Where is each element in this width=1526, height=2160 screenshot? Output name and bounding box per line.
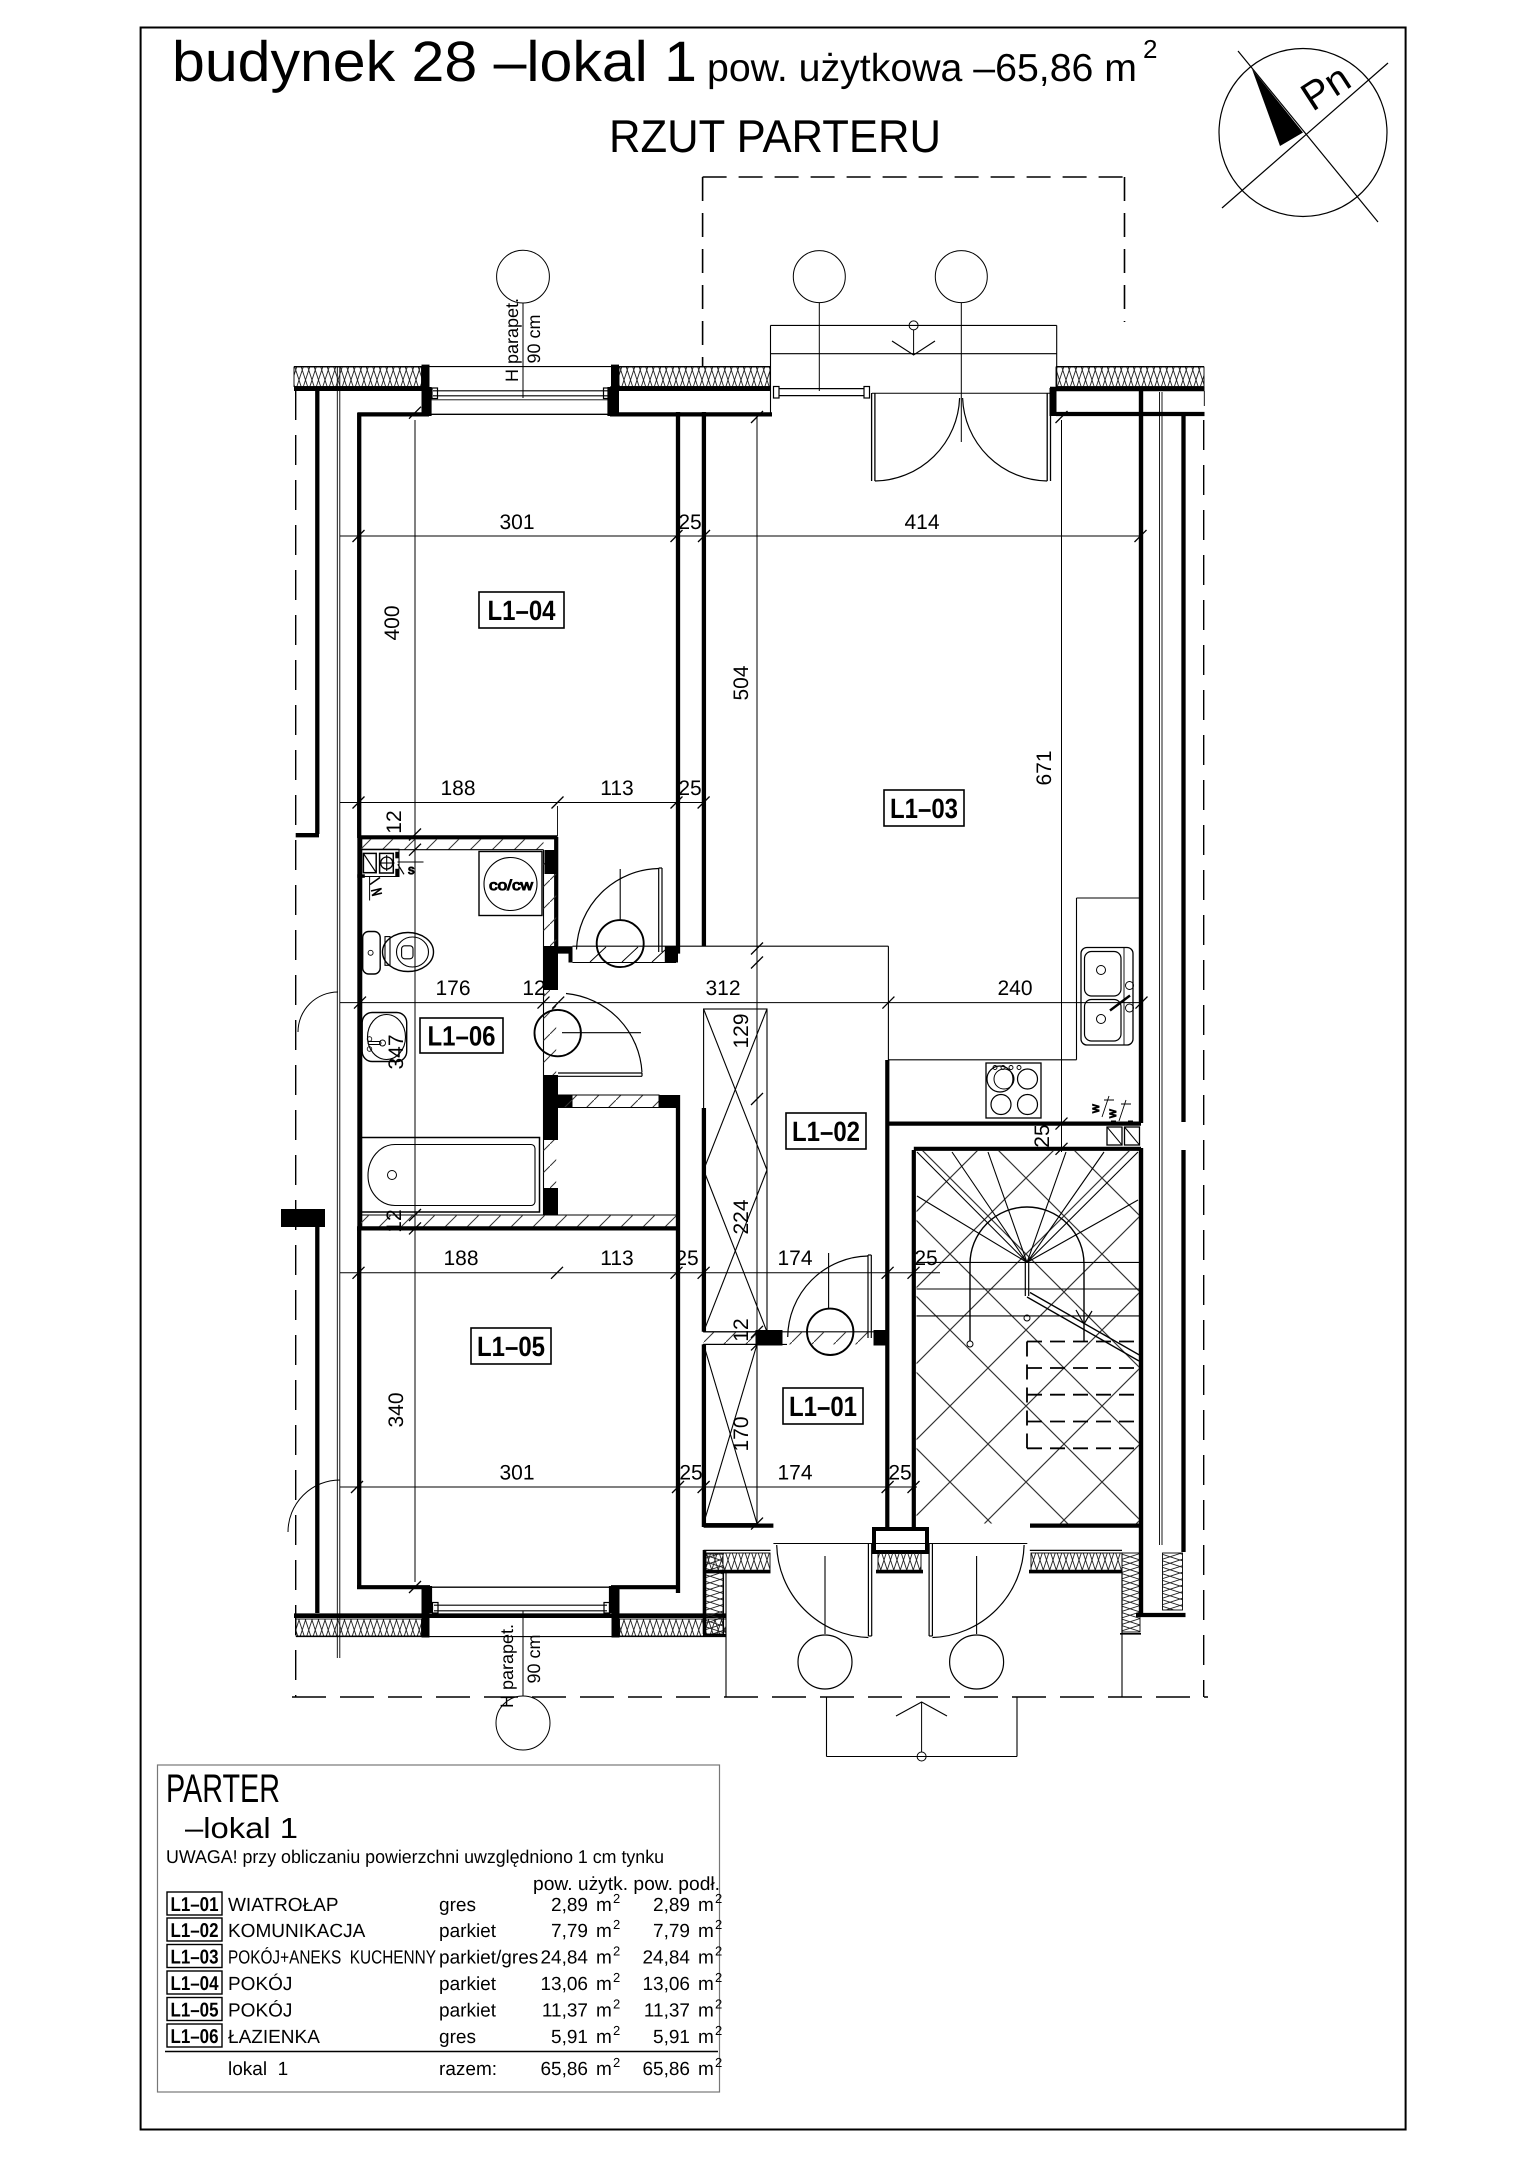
svg-text:L1–05: L1–05 bbox=[171, 2000, 219, 2022]
svg-text:113: 113 bbox=[600, 777, 633, 800]
svg-text:m: m bbox=[698, 1974, 714, 1995]
svg-text:2: 2 bbox=[715, 2023, 722, 2038]
svg-text:L1–04: L1–04 bbox=[171, 1973, 220, 1995]
svg-text:m: m bbox=[698, 1921, 714, 1942]
svg-text:2: 2 bbox=[613, 1917, 620, 1932]
svg-text:w: w bbox=[1088, 1104, 1102, 1114]
svg-text:7,79: 7,79 bbox=[653, 1921, 690, 1942]
svg-text:parkiet: parkiet bbox=[439, 1974, 497, 1995]
svg-text:25: 25 bbox=[1031, 1124, 1054, 1147]
svg-text:24,84: 24,84 bbox=[642, 1948, 690, 1969]
svg-text:11,37: 11,37 bbox=[542, 2001, 588, 2022]
svg-text:13,06: 13,06 bbox=[540, 1974, 588, 1995]
svg-text:–lokal 1: –lokal 1 bbox=[185, 1813, 298, 1845]
svg-text:H parapet.: H parapet. bbox=[502, 298, 522, 382]
svg-text:188: 188 bbox=[440, 777, 475, 800]
svg-text:lokal 1: lokal 1 bbox=[228, 2059, 288, 2080]
svg-text:2: 2 bbox=[1143, 34, 1157, 64]
svg-text:m: m bbox=[596, 1895, 612, 1916]
svg-text:12: 12 bbox=[383, 1209, 406, 1232]
svg-text:113: 113 bbox=[600, 1247, 633, 1270]
svg-text:m: m bbox=[698, 1948, 714, 1969]
svg-text:L1–01: L1–01 bbox=[789, 1391, 857, 1422]
svg-text:2,89: 2,89 bbox=[551, 1895, 588, 1916]
svg-text:504: 504 bbox=[730, 665, 753, 700]
svg-text:parkiet: parkiet bbox=[439, 1921, 497, 1942]
svg-text:pow. użytkowa –65,86 m: pow. użytkowa –65,86 m bbox=[707, 47, 1137, 90]
svg-text:m: m bbox=[596, 1921, 612, 1942]
svg-text:400: 400 bbox=[381, 605, 404, 640]
svg-text:301: 301 bbox=[499, 1462, 534, 1485]
svg-text:129: 129 bbox=[730, 1013, 753, 1048]
svg-text:2: 2 bbox=[613, 2023, 620, 2038]
svg-text:7,79: 7,79 bbox=[551, 1921, 588, 1942]
svg-text:2: 2 bbox=[715, 1997, 722, 2012]
svg-text:gres: gres bbox=[439, 1895, 476, 1916]
svg-text:POKÓJ+ANEKS KUCHENNY: POKÓJ+ANEKS KUCHENNY bbox=[228, 1947, 436, 1969]
svg-text:176: 176 bbox=[435, 977, 470, 1000]
svg-text:WIATROŁAP: WIATROŁAP bbox=[228, 1895, 339, 1916]
svg-text:L1–05: L1–05 bbox=[477, 1331, 545, 1362]
svg-text:POKÓJ: POKÓJ bbox=[228, 1973, 292, 1995]
svg-text:170: 170 bbox=[730, 1416, 753, 1451]
svg-text:11,37: 11,37 bbox=[644, 2001, 690, 2022]
svg-text:90 cm: 90 cm bbox=[524, 314, 544, 363]
svg-text:301: 301 bbox=[499, 511, 534, 534]
svg-text:340: 340 bbox=[385, 1392, 408, 1427]
svg-text:2: 2 bbox=[715, 1970, 722, 1985]
svg-text:13,06: 13,06 bbox=[642, 1974, 690, 1995]
svg-text:2: 2 bbox=[613, 2055, 620, 2070]
svg-text:25: 25 bbox=[678, 777, 701, 800]
svg-text:25: 25 bbox=[914, 1247, 937, 1270]
svg-text:2: 2 bbox=[613, 1997, 620, 2012]
svg-text:m: m bbox=[698, 1895, 714, 1916]
svg-text:25: 25 bbox=[678, 511, 701, 534]
svg-text:L1–06: L1–06 bbox=[171, 2026, 219, 2048]
svg-text:m: m bbox=[596, 1974, 612, 1995]
svg-text:m: m bbox=[596, 1948, 612, 1969]
svg-text:65,86: 65,86 bbox=[540, 2059, 588, 2080]
svg-text:m: m bbox=[698, 2027, 714, 2048]
svg-text:174: 174 bbox=[777, 1247, 812, 1270]
svg-text:2: 2 bbox=[715, 1891, 722, 1906]
svg-text:L1–06: L1–06 bbox=[428, 1021, 496, 1052]
svg-text:2: 2 bbox=[613, 1970, 620, 1985]
svg-text:razem:: razem: bbox=[439, 2059, 497, 2080]
svg-text:m: m bbox=[596, 2027, 612, 2048]
svg-text:12: 12 bbox=[383, 810, 406, 833]
svg-text:347: 347 bbox=[385, 1034, 408, 1069]
svg-text:12: 12 bbox=[522, 977, 545, 1000]
svg-text:65,86: 65,86 bbox=[642, 2059, 690, 2080]
svg-text:188: 188 bbox=[443, 1247, 478, 1270]
svg-text:90 cm: 90 cm bbox=[524, 1634, 544, 1683]
svg-text:2: 2 bbox=[613, 1944, 620, 1959]
svg-text:parkiet: parkiet bbox=[439, 2001, 497, 2022]
svg-text:24,84: 24,84 bbox=[540, 1948, 588, 1969]
svg-text:L1–03: L1–03 bbox=[890, 793, 958, 824]
svg-text:25: 25 bbox=[675, 1247, 698, 1270]
svg-text:UWAGA! przy obliczaniu powierz: UWAGA! przy obliczaniu powierzchni uwzgl… bbox=[166, 1846, 664, 1867]
svg-text:5,91: 5,91 bbox=[551, 2027, 588, 2048]
svg-text:co/cw: co/cw bbox=[489, 878, 534, 894]
svg-text:parkiet/gres: parkiet/gres bbox=[439, 1948, 538, 1969]
svg-text:m: m bbox=[698, 2059, 714, 2080]
svg-text:w: w bbox=[1105, 1109, 1119, 1119]
svg-text:pow. użytk. pow. podł.: pow. użytk. pow. podł. bbox=[533, 1874, 720, 1895]
svg-text:2: 2 bbox=[715, 1944, 722, 1959]
svg-text:gres: gres bbox=[439, 2027, 476, 2048]
svg-text:RZUT PARTERU: RZUT PARTERU bbox=[609, 110, 941, 162]
svg-text:budynek 28 –lokal 1: budynek 28 –lokal 1 bbox=[172, 30, 697, 94]
svg-text:2: 2 bbox=[613, 1891, 620, 1906]
svg-text:2: 2 bbox=[715, 2055, 722, 2070]
svg-text:2: 2 bbox=[715, 1917, 722, 1932]
svg-text:m: m bbox=[596, 2059, 612, 2080]
svg-text:PARTER: PARTER bbox=[166, 1767, 280, 1811]
svg-text:ŁAZIENKA: ŁAZIENKA bbox=[228, 2027, 320, 2048]
svg-text:m: m bbox=[596, 2001, 612, 2022]
svg-text:L1–03: L1–03 bbox=[171, 1947, 219, 1969]
svg-text:174: 174 bbox=[777, 1462, 812, 1485]
svg-text:12: 12 bbox=[730, 1318, 753, 1341]
svg-text:671: 671 bbox=[1033, 750, 1056, 785]
svg-text:L1–01: L1–01 bbox=[171, 1894, 219, 1916]
svg-text:s: s bbox=[408, 862, 415, 877]
svg-text:224: 224 bbox=[730, 1199, 753, 1234]
svg-text:L1–02: L1–02 bbox=[171, 1920, 219, 1942]
svg-text:414: 414 bbox=[904, 511, 939, 534]
svg-text:25: 25 bbox=[888, 1462, 911, 1485]
svg-text:312: 312 bbox=[705, 977, 740, 1000]
svg-text:25: 25 bbox=[679, 1462, 702, 1485]
svg-text:POKÓJ: POKÓJ bbox=[228, 2000, 292, 2022]
svg-text:240: 240 bbox=[997, 977, 1032, 1000]
svg-text:KOMUNIKACJA: KOMUNIKACJA bbox=[228, 1921, 366, 1942]
svg-text:L1–04: L1–04 bbox=[488, 595, 556, 626]
svg-text:5,91: 5,91 bbox=[653, 2027, 690, 2048]
svg-text:2,89: 2,89 bbox=[653, 1895, 690, 1916]
svg-text:m: m bbox=[698, 2001, 714, 2022]
svg-text:L1–02: L1–02 bbox=[792, 1116, 860, 1147]
